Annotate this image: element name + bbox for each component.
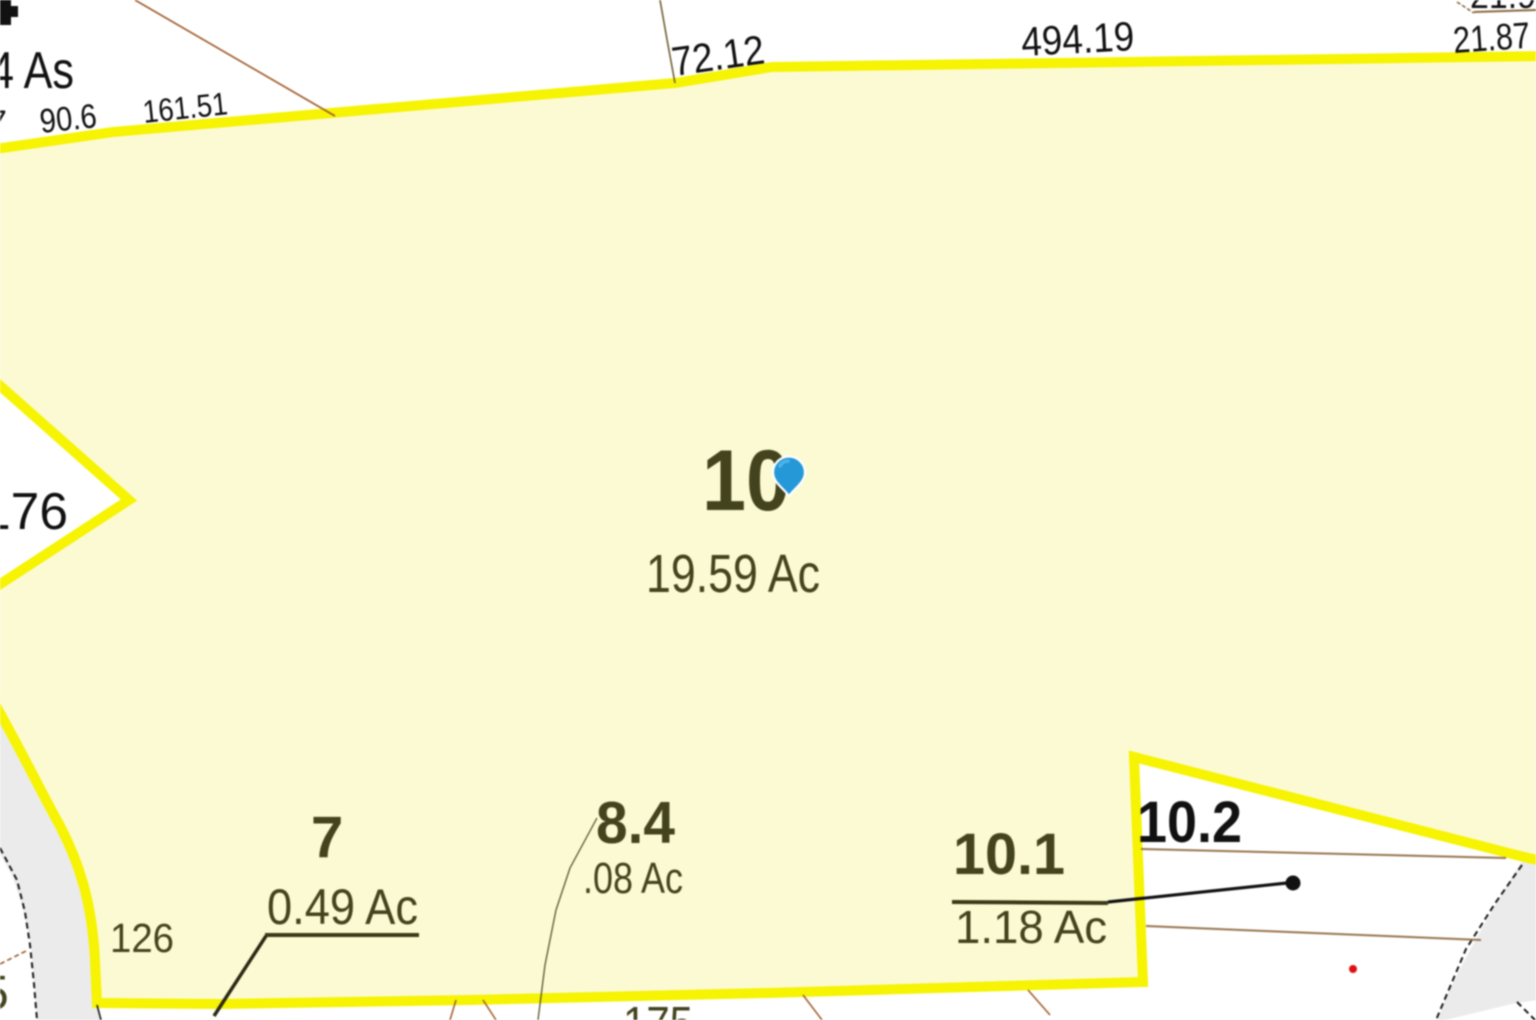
- svg-text:1.18 Ac: 1.18 Ac: [955, 901, 1107, 953]
- svg-text:7: 7: [311, 805, 343, 870]
- svg-text:10.1: 10.1: [953, 822, 1065, 887]
- svg-text:494.19: 494.19: [1020, 13, 1135, 65]
- svg-text:176: 176: [0, 483, 68, 541]
- svg-text:8.4: 8.4: [596, 790, 675, 856]
- svg-text:126: 126: [110, 915, 174, 961]
- svg-text:175: 175: [623, 997, 693, 1020]
- svg-text:5: 5: [0, 967, 9, 1020]
- svg-text:21.87: 21.87: [1452, 15, 1532, 61]
- svg-text:90.6: 90.6: [38, 97, 99, 141]
- svg-text:.08 Ac: .08 Ac: [583, 854, 683, 903]
- svg-text:21.9: 21.9: [1470, 0, 1536, 16]
- svg-text:7: 7: [0, 104, 7, 140]
- svg-text:0.49 Ac: 0.49 Ac: [267, 879, 418, 935]
- svg-text:19.59 Ac: 19.59 Ac: [646, 544, 820, 604]
- svg-text:10.2: 10.2: [1137, 790, 1242, 855]
- svg-text:4 As: 4 As: [0, 42, 74, 100]
